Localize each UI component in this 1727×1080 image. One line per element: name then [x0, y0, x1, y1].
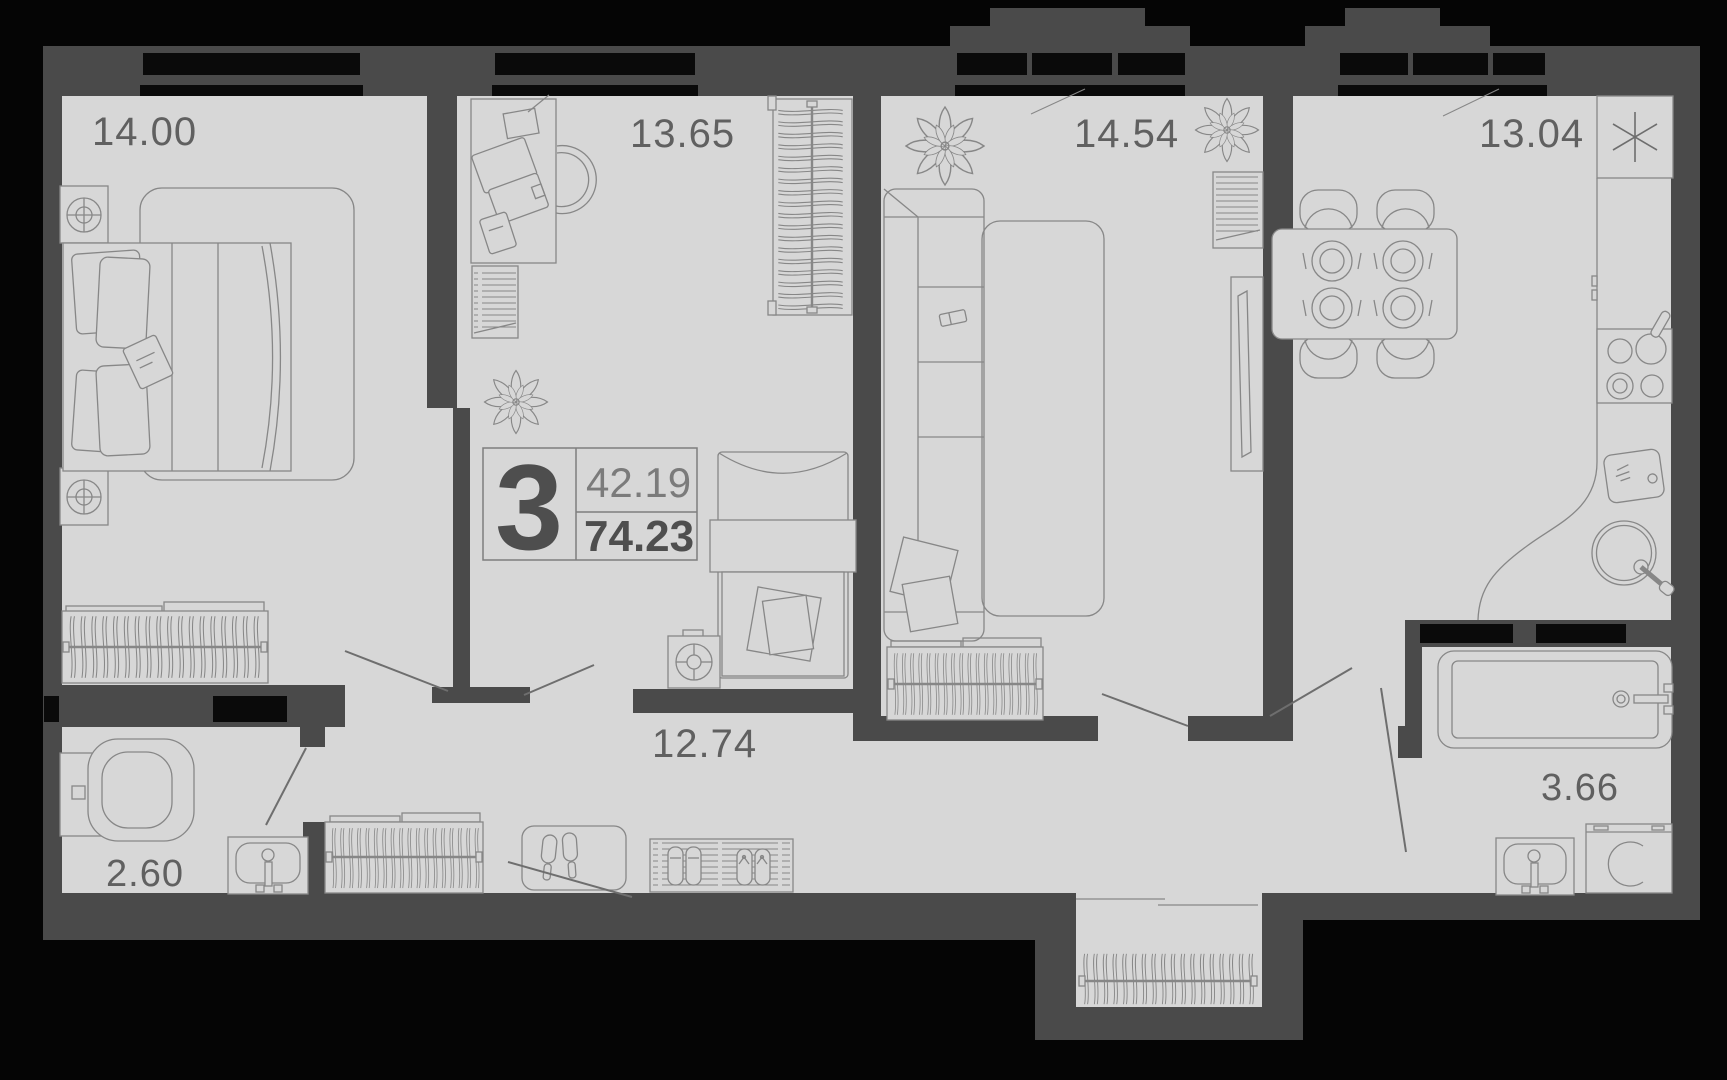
doormat — [650, 839, 793, 892]
single-bed — [710, 452, 856, 678]
room-label-bedroom: 14.00 — [92, 110, 197, 154]
dining-table — [1272, 229, 1457, 339]
room-label-living: 14.54 — [1074, 112, 1179, 156]
desk — [471, 95, 556, 263]
bathtub — [1438, 651, 1673, 748]
chair — [1300, 190, 1357, 232]
shelf-unit — [1213, 172, 1263, 248]
double-bed — [63, 243, 291, 471]
unit-info-box: 3 42.19 74.23 — [483, 439, 697, 575]
unit-total-area: 74.23 — [584, 512, 694, 561]
ventilation-box — [1597, 96, 1673, 178]
balcony-outline — [950, 8, 1490, 46]
floor-plan-canvas: 14.00 — [0, 0, 1727, 1080]
window-study — [495, 53, 695, 75]
room-label-kitchen: 13.04 — [1479, 112, 1584, 156]
window-bedroom — [143, 53, 360, 75]
room-label-hallway: 12.74 — [652, 722, 757, 766]
plant-icon — [485, 371, 548, 434]
unit-rooms-count: 3 — [495, 439, 563, 575]
air-conditioner — [668, 630, 720, 688]
plant-icon — [1196, 99, 1259, 162]
window-living — [957, 53, 1027, 75]
room-label-bathroom: 3.66 — [1541, 767, 1619, 809]
washing-machine — [1586, 824, 1672, 893]
room-label-toilet: 2.60 — [106, 853, 184, 895]
sofa — [884, 189, 984, 641]
chair — [1377, 190, 1434, 232]
unit-living-area: 42.19 — [586, 459, 691, 506]
chair — [1300, 336, 1357, 378]
chair — [1377, 336, 1434, 378]
toilet — [60, 739, 194, 841]
plant-icon — [906, 107, 984, 185]
nightstand — [60, 468, 108, 525]
nightstand — [60, 186, 108, 243]
coat-rack — [325, 813, 483, 893]
toilet-sink — [228, 837, 308, 894]
cutting-board — [1603, 448, 1665, 503]
wardrobe — [887, 638, 1043, 720]
window-kitchen — [1340, 53, 1408, 75]
bathroom-sink — [1496, 838, 1574, 895]
wardrobe — [62, 602, 268, 683]
radiator — [472, 266, 518, 338]
tv-stand — [1231, 277, 1263, 471]
room-label-study: 13.65 — [630, 112, 735, 156]
wardrobe-closet — [768, 96, 852, 315]
floor-plan: 14.00 — [0, 0, 1727, 1080]
